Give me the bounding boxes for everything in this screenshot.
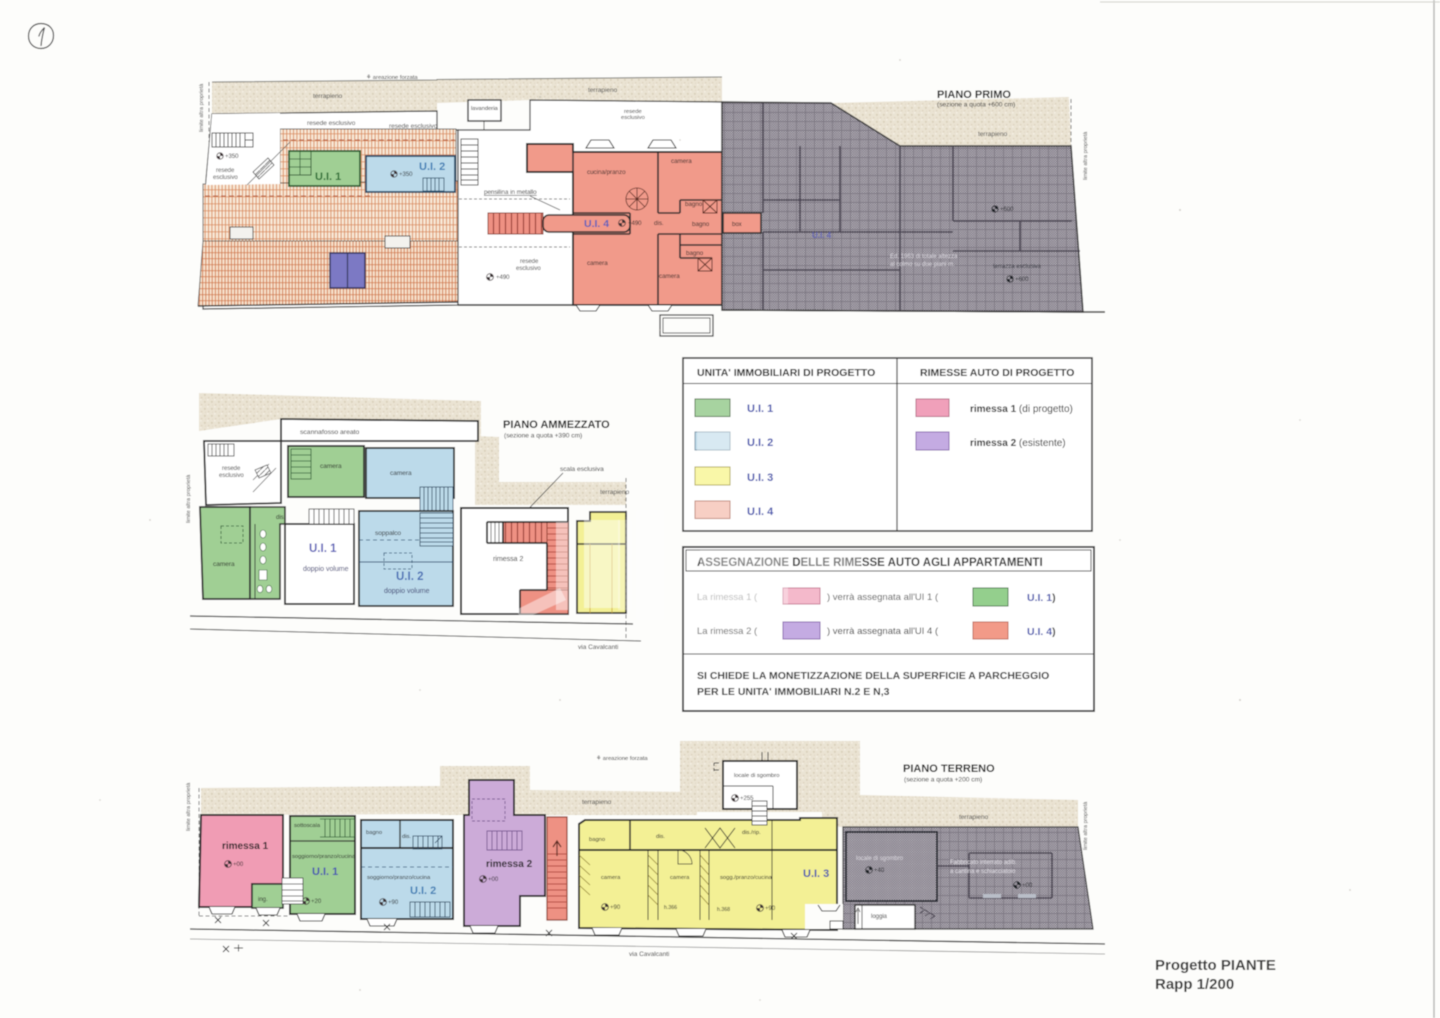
svg-text:PIANO AMMEZZATO: PIANO AMMEZZATO: [503, 419, 610, 431]
svg-text:al colmo su due piani m.: al colmo su due piani m.: [890, 262, 955, 268]
svg-text:resede: resede: [216, 168, 235, 174]
svg-text:limite altra proprietà: limite altra proprietà: [186, 474, 192, 523]
svg-text:dis.: dis.: [654, 220, 664, 227]
svg-text:dis./rip.: dis./rip.: [742, 830, 761, 836]
svg-text:esclusivo: esclusivo: [621, 115, 645, 121]
svg-text:+490: +490: [628, 221, 642, 227]
svg-text:bagno: bagno: [589, 837, 605, 843]
svg-text:+00: +00: [233, 862, 244, 868]
svg-text:dis.: dis.: [276, 515, 286, 521]
svg-text:via Cavalcanti: via Cavalcanti: [578, 644, 618, 651]
svg-text:Progetto PIANTE: Progetto PIANTE: [1155, 957, 1276, 974]
svg-text:Ed. 1963 di totale altezza: Ed. 1963 di totale altezza: [890, 254, 958, 260]
svg-text:PIANO TERRENO: PIANO TERRENO: [903, 763, 995, 775]
svg-text:U.I. 1): U.I. 1): [1027, 592, 1056, 604]
svg-text:esclusivo: esclusivo: [219, 473, 244, 479]
svg-text:+490: +490: [496, 275, 510, 281]
svg-text:camera: camera: [213, 561, 235, 568]
svg-text:(sezione a quota +200 cm): (sezione a quota +200 cm): [904, 777, 982, 784]
svg-text:) verrà assegnata all'UI 4 (: ) verrà assegnata all'UI 4 (: [827, 626, 939, 637]
svg-text:La rimessa 2 (: La rimessa 2 (: [697, 626, 758, 637]
svg-text:terrapieno: terrapieno: [588, 87, 618, 94]
svg-text:cucina/pranzo: cucina/pranzo: [587, 169, 626, 176]
svg-text:camera: camera: [587, 260, 608, 267]
svg-text:+90: +90: [765, 906, 776, 912]
svg-text:bagno: bagno: [685, 201, 703, 208]
svg-text:soppalco: soppalco: [375, 530, 401, 537]
svg-text:via Cavalcanti: via Cavalcanti: [629, 951, 669, 958]
svg-text:Fabbricato interrato adib.: Fabbricato interrato adib.: [950, 860, 1017, 866]
svg-text:pensilina in metallo: pensilina in metallo: [484, 189, 537, 196]
svg-text:limite altra proprietà: limite altra proprietà: [1083, 801, 1089, 850]
svg-text:rimessa 1 (di progetto): rimessa 1 (di progetto): [970, 404, 1073, 415]
svg-text:U.I. 3: U.I. 3: [803, 868, 829, 880]
svg-text:PER LE UNITA' IMMOBILIARI N.2: PER LE UNITA' IMMOBILIARI N.2 E N,3: [697, 686, 890, 698]
svg-text:sottoscala: sottoscala: [294, 823, 321, 829]
svg-text:camera: camera: [671, 158, 692, 165]
svg-text:UNITA' IMMOBILIARI DI PROGETTO: UNITA' IMMOBILIARI DI PROGETTO: [697, 367, 875, 379]
svg-text:resede esclusivo: resede esclusivo: [307, 120, 356, 127]
svg-text:camera: camera: [670, 875, 690, 881]
svg-text:terrazza esclusiva: terrazza esclusiva: [993, 264, 1042, 270]
svg-text:esclusivo: esclusivo: [213, 175, 238, 181]
svg-text:rimessa 2: rimessa 2: [493, 556, 523, 563]
svg-text:+600: +600: [1015, 277, 1029, 283]
svg-text:U.I. 4: U.I. 4: [584, 218, 609, 230]
svg-text:terrapieno: terrapieno: [582, 799, 612, 806]
svg-text:sogg./pranzo/cucina: sogg./pranzo/cucina: [720, 875, 773, 881]
svg-text:soggiorno/pranzo/cucina: soggiorno/pranzo/cucina: [367, 875, 431, 881]
svg-text:dis.: dis.: [656, 834, 665, 840]
svg-text:U.I. 4): U.I. 4): [1027, 626, 1056, 638]
svg-text:scannafosso areato: scannafosso areato: [300, 429, 360, 436]
svg-text:) verrà assegnata all'UI 1 (: ) verrà assegnata all'UI 1 (: [827, 592, 939, 603]
svg-text:camera: camera: [659, 273, 680, 280]
svg-text:+90: +90: [610, 905, 621, 911]
svg-text:resede esclusivo: resede esclusivo: [389, 123, 438, 130]
svg-text:locale di sgombro: locale di sgombro: [856, 856, 904, 862]
svg-text:scala esclusiva: scala esclusiva: [560, 466, 604, 473]
svg-text:⚘ areazione forzata: ⚘ areazione forzata: [366, 74, 418, 81]
svg-text:camera: camera: [390, 470, 412, 477]
svg-text:resede: resede: [222, 466, 241, 472]
svg-text:soggiorno/pranzo/cucina: soggiorno/pranzo/cucina: [292, 854, 356, 860]
svg-text:SI CHIEDE LA MONETIZZAZIONE DE: SI CHIEDE LA MONETIZZAZIONE DELLA SUPERF…: [697, 670, 1049, 682]
svg-text:⚘ areazione forzata: ⚘ areazione forzata: [596, 755, 648, 762]
svg-text:resede: resede: [520, 259, 539, 265]
svg-text:(sezione a quota +390 cm): (sezione a quota +390 cm): [504, 433, 582, 440]
svg-text:bagno: bagno: [686, 250, 704, 257]
svg-text:U.I. 1: U.I. 1: [315, 171, 341, 183]
svg-text:+350: +350: [225, 154, 239, 160]
svg-text:PIANO PRIMO: PIANO PRIMO: [937, 89, 1011, 101]
svg-text:+20: +20: [311, 899, 322, 905]
svg-text:box: box: [732, 222, 742, 228]
svg-text:bagno: bagno: [366, 830, 382, 836]
svg-text:rimessa 1: rimessa 1: [222, 841, 269, 852]
svg-text:U.I. 2: U.I. 2: [410, 885, 436, 897]
svg-text:U.I. 1: U.I. 1: [309, 543, 337, 555]
svg-text:rimessa 2: rimessa 2: [486, 859, 533, 870]
svg-text:camera: camera: [320, 463, 342, 470]
svg-text:h.366: h.366: [664, 905, 677, 911]
svg-text:limite altra proprietà: limite altra proprietà: [186, 782, 192, 831]
svg-text:+90: +90: [388, 900, 399, 906]
svg-text:locale di sgombro: locale di sgombro: [734, 773, 779, 779]
svg-text:terrapieno: terrapieno: [313, 93, 343, 100]
svg-text:dis.: dis.: [402, 834, 411, 840]
svg-text:U.I. 1: U.I. 1: [312, 866, 338, 878]
svg-text:doppio volume: doppio volume: [303, 566, 349, 573]
svg-text:ing.: ing.: [258, 897, 268, 903]
svg-text:U.I. 4: U.I. 4: [747, 506, 774, 518]
svg-text:U.I. 2: U.I. 2: [396, 571, 423, 583]
svg-text:+600: +600: [1000, 207, 1014, 213]
svg-text:loggia: loggia: [871, 914, 888, 920]
svg-text:terrapieno: terrapieno: [978, 131, 1008, 138]
svg-text:(sezione a quota +600 cm): (sezione a quota +600 cm): [937, 102, 1015, 109]
svg-text:h.368: h.368: [717, 907, 730, 913]
svg-text:U.I. 4: U.I. 4: [812, 231, 832, 240]
svg-text:+40: +40: [874, 868, 885, 874]
svg-text:terrapieno: terrapieno: [959, 814, 989, 821]
svg-text:doppio volume: doppio volume: [384, 588, 430, 595]
svg-text:RIMESSE AUTO DI PROGETTO: RIMESSE AUTO DI PROGETTO: [920, 367, 1074, 379]
svg-text:+00: +00: [488, 877, 499, 883]
svg-text:U.I. 2: U.I. 2: [419, 161, 445, 173]
svg-text:terrapieno: terrapieno: [600, 489, 630, 496]
svg-text:+350: +350: [399, 172, 413, 178]
svg-text:rimessa 2 (esistente): rimessa 2 (esistente): [970, 438, 1066, 449]
svg-text:+00: +00: [1022, 883, 1033, 889]
svg-text:U.I. 1: U.I. 1: [747, 403, 773, 415]
svg-text:limite altra proprietà: limite altra proprietà: [1083, 131, 1089, 180]
svg-text:U.I. 3: U.I. 3: [747, 472, 773, 484]
svg-text:U.I. 2: U.I. 2: [747, 437, 773, 449]
svg-text:a cantina e schiacciatoio: a cantina e schiacciatoio: [950, 869, 1016, 875]
svg-text:Rapp 1/200: Rapp 1/200: [1155, 976, 1234, 993]
svg-text:bagno: bagno: [692, 221, 710, 228]
svg-text:limite altra proprietà: limite altra proprietà: [199, 83, 205, 132]
svg-text:camera: camera: [601, 875, 621, 881]
svg-text:lavanderia: lavanderia: [471, 106, 499, 112]
svg-text:esclusivo: esclusivo: [516, 266, 541, 272]
